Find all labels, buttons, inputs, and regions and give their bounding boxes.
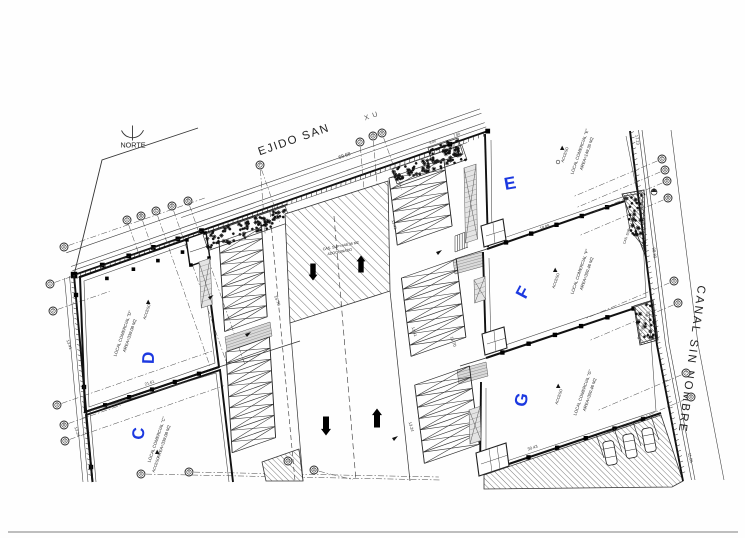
svg-text:1: 1 <box>126 218 128 222</box>
svg-text:C: C <box>129 427 149 441</box>
svg-text:7: 7 <box>685 371 687 375</box>
svg-text:2: 2 <box>359 140 361 144</box>
svg-text:5: 5 <box>673 279 675 283</box>
svg-text:9: 9 <box>188 470 190 474</box>
svg-text:11: 11 <box>312 468 316 472</box>
svg-text:F: F <box>259 163 261 167</box>
svg-text:8: 8 <box>140 472 142 476</box>
svg-text:D: D <box>139 351 158 364</box>
svg-text:6: 6 <box>677 301 679 305</box>
svg-text:8: 8 <box>690 395 692 399</box>
svg-text:1: 1 <box>49 282 51 286</box>
svg-text:NORTE: NORTE <box>120 141 145 150</box>
svg-text:2: 2 <box>52 309 54 313</box>
svg-text:G: G <box>372 134 375 138</box>
svg-text:4: 4 <box>64 439 66 443</box>
svg-text:3: 3 <box>56 403 58 407</box>
svg-text:10: 10 <box>286 459 290 463</box>
